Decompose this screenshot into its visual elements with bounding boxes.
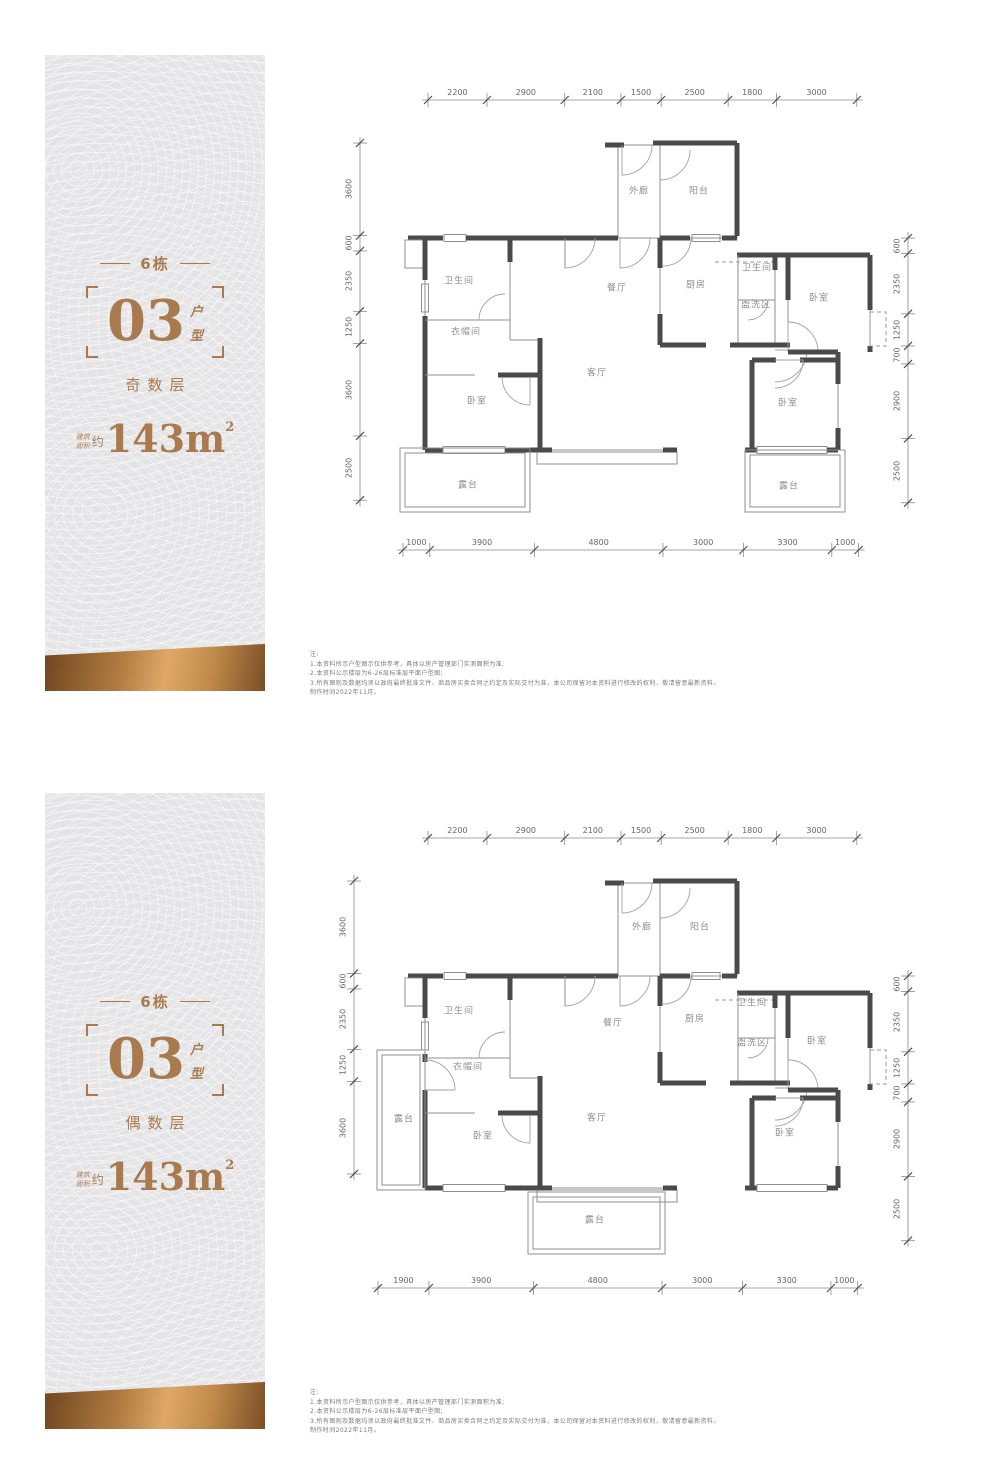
notes-even: 注:1.本资料所示户型图示仅供参考，具体以房产管理部门实测面积为准;2.本资料公… (310, 1388, 730, 1436)
dim-label: 3000 (806, 826, 826, 835)
room-label: 外廊 (629, 184, 649, 197)
room-label: 卫生间 (444, 274, 474, 287)
room-label: 衣帽间 (451, 325, 481, 338)
room-label: 卧室 (778, 396, 798, 409)
dim-label: 2350 (893, 1011, 902, 1031)
dim-label: 2100 (583, 88, 603, 97)
dim-label: 3600 (345, 380, 354, 400)
room-label: 卫生间 (742, 261, 772, 274)
dim-label: 2900 (893, 1129, 902, 1149)
room-label: 盥洗区 (741, 298, 771, 311)
dim-label: 600 (339, 974, 348, 989)
room-label: 卧室 (473, 1129, 493, 1142)
dim-label: 3600 (345, 179, 354, 199)
note-line: 3.所有图则及数据均须以政府最终批准文件、商品房买卖合同之约定及实际交付为准，本… (310, 679, 730, 689)
dim-label: 2900 (516, 826, 536, 835)
note-line: 注: (310, 1388, 730, 1398)
dim-label: 1500 (631, 88, 651, 97)
note-line: 1.本资料所示户型图示仅供参考，具体以房产管理部门实测面积为准; (310, 660, 730, 670)
room-label: 卧室 (809, 291, 829, 304)
dim-label: 3000 (806, 88, 826, 97)
note-line: 3.所有图则及数据均须以政府最终批准文件、商品房买卖合同之约定及实际交付为准，本… (310, 1417, 730, 1427)
room-label: 餐厅 (607, 281, 627, 294)
dim-label: 1800 (742, 88, 762, 97)
dim-label: 4800 (588, 1276, 608, 1285)
room-label: 露台 (585, 1213, 605, 1226)
room-label: 衣帽间 (453, 1060, 483, 1073)
dim-label: 2500 (684, 88, 704, 97)
plan-labels-layer: 2200290021001500250018003000100039004800… (0, 0, 1000, 1471)
dim-label: 2350 (339, 1009, 348, 1029)
dim-label: 600 (893, 976, 902, 991)
dim-label: 3600 (339, 917, 348, 937)
dim-label: 3000 (693, 538, 713, 547)
dim-label: 3900 (472, 538, 492, 547)
dim-label: 1250 (339, 1055, 348, 1075)
note-line: 注: (310, 650, 730, 660)
room-label: 客厅 (587, 1111, 607, 1124)
dim-label: 2900 (516, 88, 536, 97)
dim-label: 2350 (345, 271, 354, 291)
dim-label: 4800 (588, 538, 608, 547)
dim-label: 2350 (893, 273, 902, 293)
dim-label: 1500 (631, 826, 651, 835)
room-label: 露台 (394, 1112, 414, 1125)
dim-label: 3300 (777, 1276, 797, 1285)
dim-label: 2500 (893, 1198, 902, 1218)
note-line: 1.本资料所示户型图示仅供参考，具体以房产管理部门实测面积为准; (310, 1398, 730, 1408)
room-label: 卧室 (467, 394, 487, 407)
note-line: 2.本资料公示楼层为6-26层标准层平面户型图; (310, 1407, 730, 1417)
room-label: 盥洗区 (737, 1036, 767, 1049)
dim-label: 2100 (583, 826, 603, 835)
room-label: 客厅 (587, 366, 607, 379)
dim-label: 2500 (345, 458, 354, 478)
dim-label: 2200 (447, 826, 467, 835)
room-label: 露台 (458, 478, 478, 491)
note-line: 制作时间2022年11月。 (310, 688, 730, 698)
dim-label: 2500 (893, 460, 902, 480)
dim-label: 600 (893, 238, 902, 253)
dim-label: 2200 (447, 88, 467, 97)
dim-label: 3900 (471, 1276, 491, 1285)
dim-label: 1250 (893, 320, 902, 340)
room-label: 餐厅 (603, 1016, 623, 1029)
dim-label: 1000 (835, 538, 855, 547)
room-label: 厨房 (686, 278, 706, 291)
dim-label: 700 (893, 1085, 902, 1100)
note-line: 制作时间2022年11月。 (310, 1426, 730, 1436)
room-label: 卫生间 (444, 1004, 474, 1017)
room-label: 卧室 (775, 1126, 795, 1139)
note-line: 2.本资料公示楼层为6-26层标准层平面户型图; (310, 669, 730, 679)
dim-label: 600 (345, 236, 354, 251)
dim-label: 1250 (345, 317, 354, 337)
dim-label: 700 (893, 347, 902, 362)
dim-label: 1250 (893, 1058, 902, 1078)
dim-label: 1000 (406, 538, 426, 547)
room-label: 露台 (779, 479, 799, 492)
room-label: 外廊 (632, 920, 652, 933)
dim-label: 1000 (834, 1276, 854, 1285)
room-label: 阳台 (689, 184, 709, 197)
room-label: 卧室 (807, 1034, 827, 1047)
dim-label: 1800 (742, 826, 762, 835)
dim-label: 2900 (893, 391, 902, 411)
dim-label: 2500 (684, 826, 704, 835)
notes-odd: 注:1.本资料所示户型图示仅供参考，具体以房产管理部门实测面积为准;2.本资料公… (310, 650, 730, 698)
dim-label: 3600 (339, 1118, 348, 1138)
dim-label: 3000 (692, 1276, 712, 1285)
room-label: 卫生间 (737, 996, 767, 1009)
dim-label: 3300 (777, 538, 797, 547)
dim-label: 1900 (393, 1276, 413, 1285)
room-label: 厨房 (685, 1012, 705, 1025)
room-label: 阳台 (690, 920, 710, 933)
